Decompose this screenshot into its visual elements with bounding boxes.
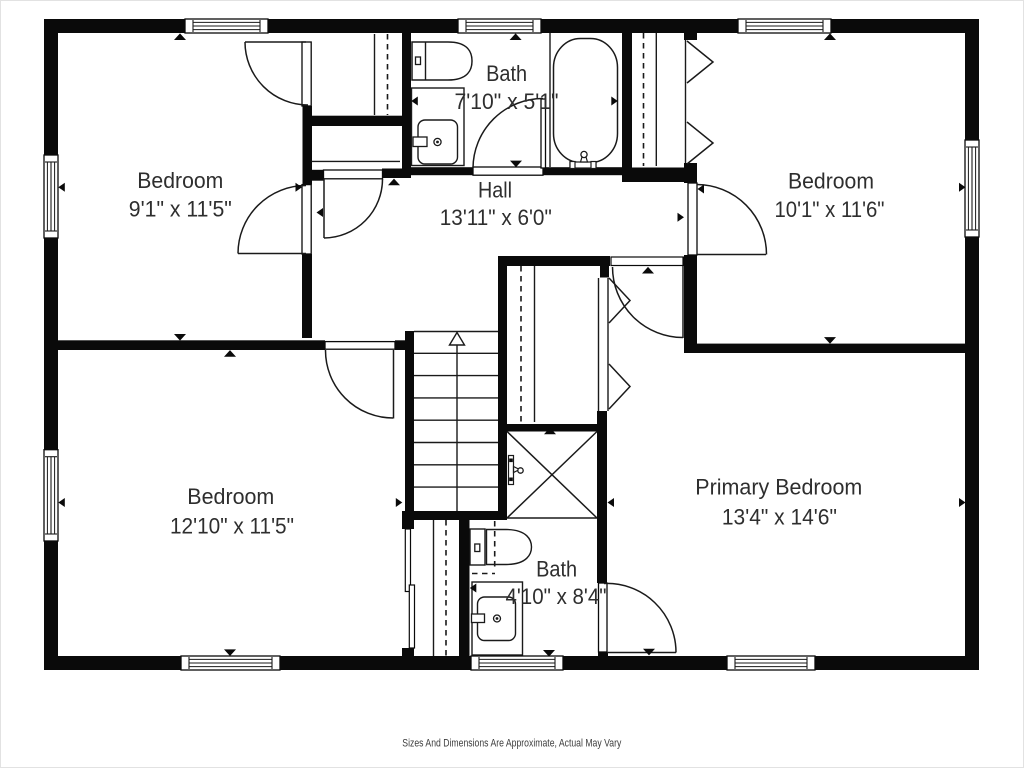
- svg-text:Bedroom: Bedroom: [187, 484, 274, 509]
- svg-text:13'11" x 6'0": 13'11" x 6'0": [440, 205, 552, 230]
- svg-text:Bath: Bath: [486, 61, 527, 86]
- svg-text:13'4" x 14'6": 13'4" x 14'6": [722, 504, 837, 529]
- svg-text:4'10" x 8'4": 4'10" x 8'4": [506, 584, 607, 609]
- svg-text:Bedroom: Bedroom: [137, 168, 223, 193]
- svg-text:12'10" x 11'5": 12'10" x 11'5": [170, 514, 294, 539]
- svg-text:Bedroom: Bedroom: [788, 169, 874, 194]
- svg-text:Hall: Hall: [478, 178, 512, 203]
- svg-text:Bath: Bath: [536, 557, 577, 582]
- svg-text:Sizes And Dimensions Are Appro: Sizes And Dimensions Are Approximate, Ac…: [402, 738, 622, 750]
- svg-text:9'1" x 11'5": 9'1" x 11'5": [129, 196, 232, 221]
- svg-text:7'10" x 5'1": 7'10" x 5'1": [455, 89, 559, 114]
- svg-text:Primary Bedroom: Primary Bedroom: [695, 475, 862, 500]
- svg-text:10'1" x 11'6": 10'1" x 11'6": [775, 197, 885, 222]
